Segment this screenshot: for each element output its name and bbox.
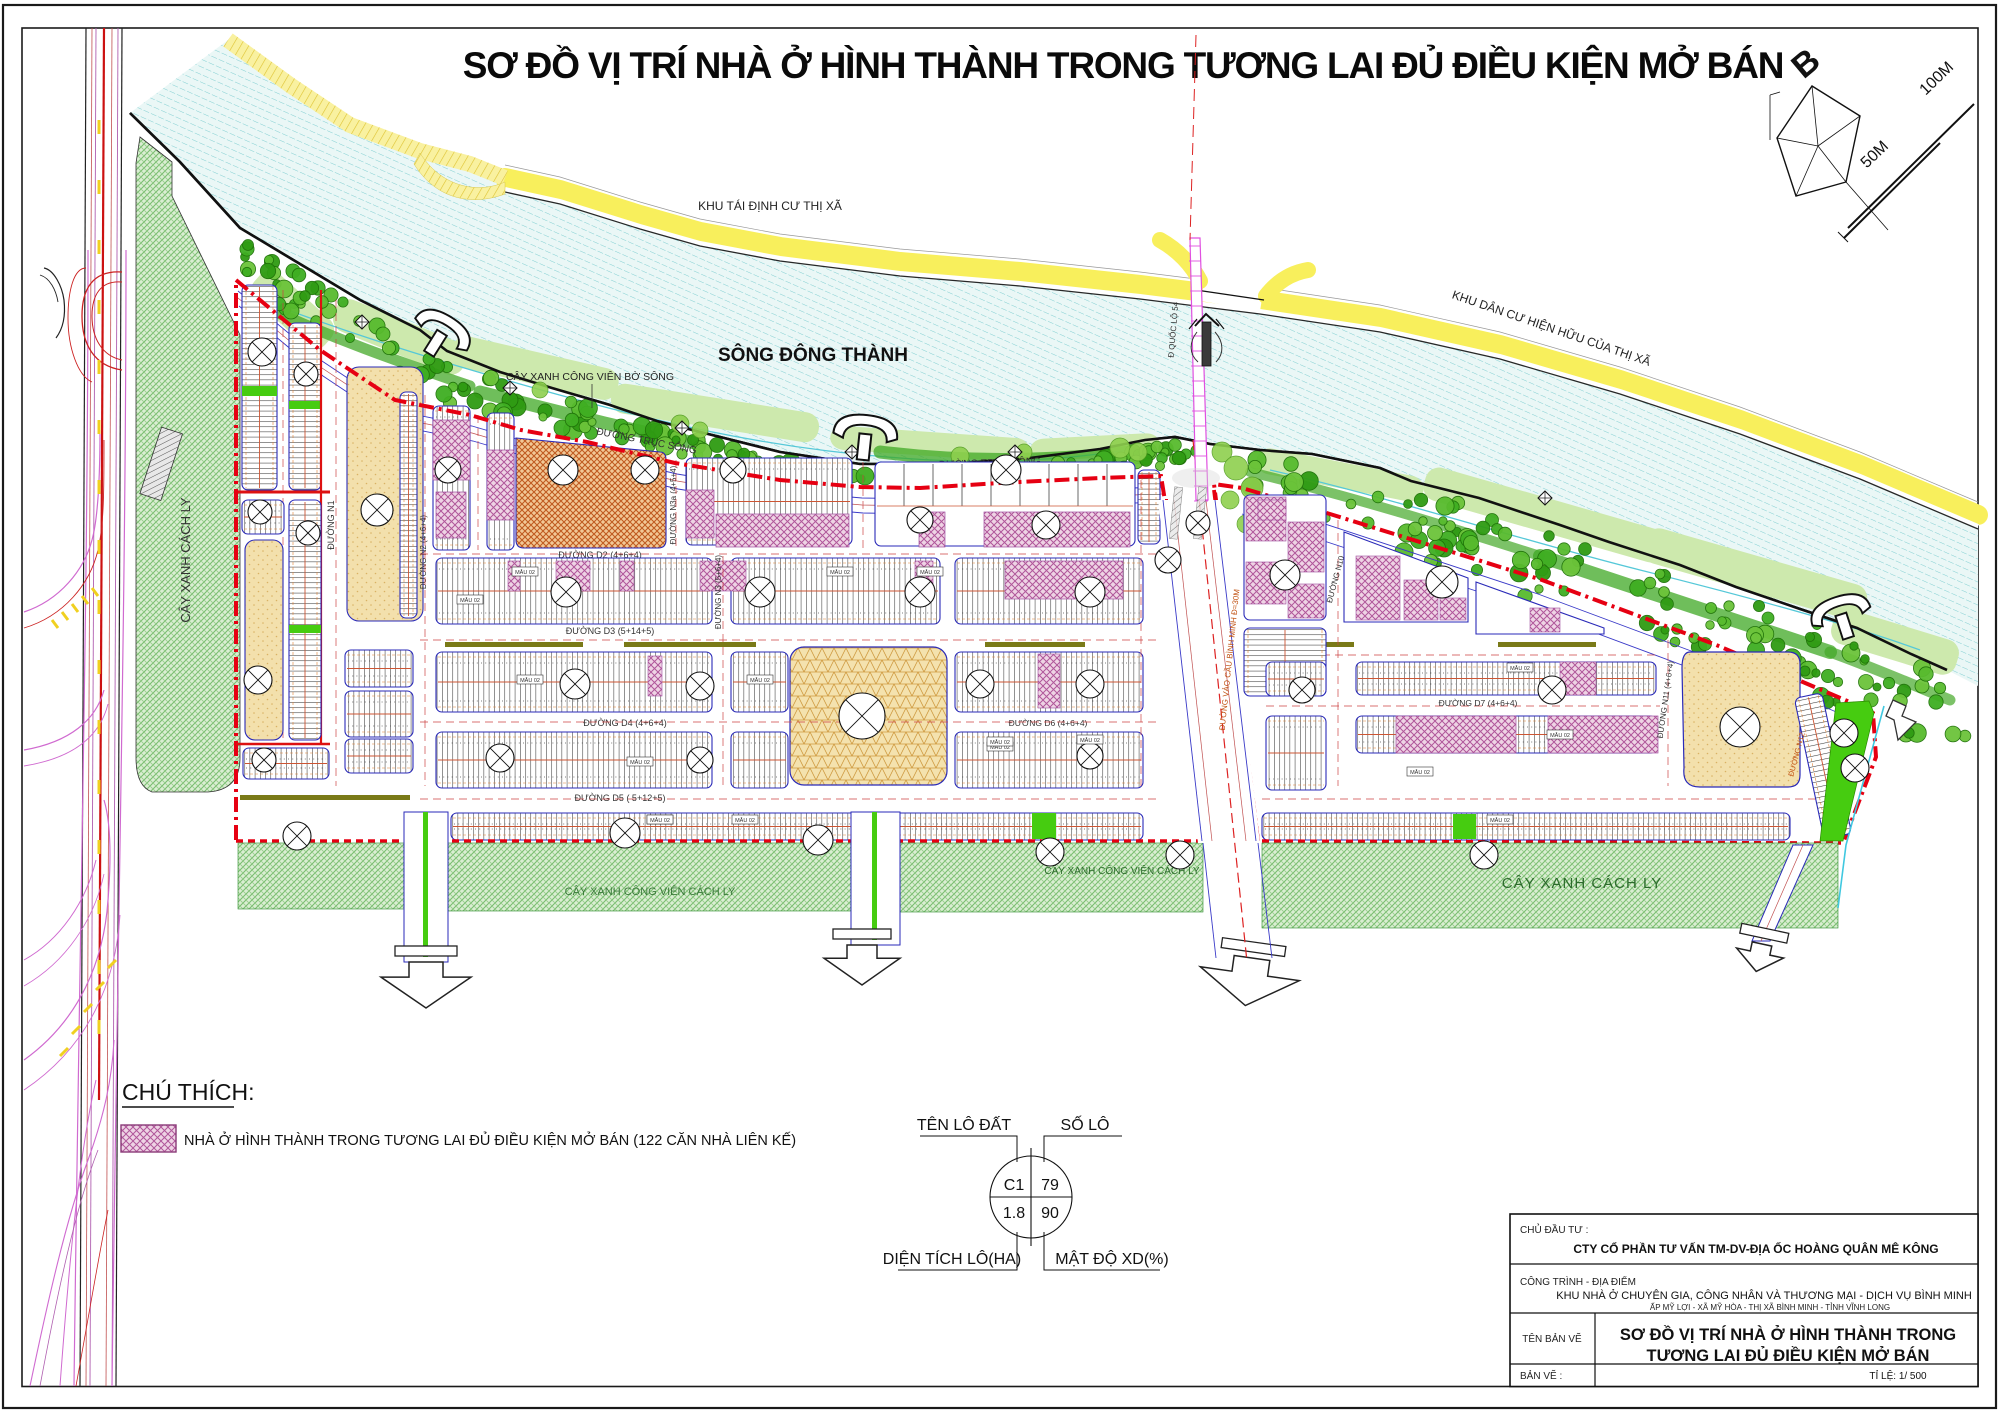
svg-text:MẪU 02: MẪU 02	[520, 677, 540, 684]
svg-text:ĐƯỜNG N1: ĐƯỜNG N1	[326, 500, 336, 549]
svg-text:MẪU 02: MẪU 02	[735, 817, 755, 824]
svg-text:MẬT ĐỘ XD(%): MẬT ĐỘ XD(%)	[1055, 1249, 1168, 1268]
svg-text:CÂY XANH CÔNG VIÊN BỜ SÔNG: CÂY XANH CÔNG VIÊN BỜ SÔNG	[506, 370, 674, 383]
svg-text:BẢN VẼ :: BẢN VẼ :	[1520, 1369, 1562, 1382]
svg-text:TÊN LÔ ĐẤT: TÊN LÔ ĐẤT	[917, 1115, 1011, 1134]
svg-text:ĐƯỜNG D6 (4+6+4): ĐƯỜNG D6 (4+6+4)	[1009, 718, 1088, 728]
svg-text:MẪU 02: MẪU 02	[1490, 817, 1510, 824]
svg-text:C1: C1	[1004, 1177, 1025, 1194]
svg-text:CÔNG TRÌNH - ĐỊA ĐIỂM: CÔNG TRÌNH - ĐỊA ĐIỂM	[1520, 1275, 1636, 1288]
svg-text:TỈ LỆ: 1/ 500: TỈ LỆ: 1/ 500	[1869, 1369, 1927, 1382]
svg-text:MẪU 02: MẪU 02	[650, 817, 670, 824]
svg-text:MẪU 02: MẪU 02	[830, 569, 850, 576]
svg-text:ĐƯỜNG D7 (4+6+4): ĐƯỜNG D7 (4+6+4)	[1439, 698, 1518, 708]
svg-text:SỐ LÔ: SỐ LÔ	[1061, 1114, 1110, 1134]
svg-text:MẪU 02: MẪU 02	[920, 569, 940, 576]
svg-text:SƠ ĐỒ VỊ TRÍ NHÀ Ở HÌNH THÀNH: SƠ ĐỒ VỊ TRÍ NHÀ Ở HÌNH THÀNH TRONG	[1620, 1325, 1956, 1344]
svg-text:MẪU 02: MẪU 02	[1550, 732, 1570, 739]
svg-text:MẪU 02: MẪU 02	[630, 759, 650, 766]
svg-text:CHỦ ĐẦU TƯ :: CHỦ ĐẦU TƯ :	[1520, 1223, 1588, 1236]
svg-text:ẤP MỸ LỢI - XÃ MỸ HÒA - THỊ XÃ: ẤP MỸ LỢI - XÃ MỸ HÒA - THỊ XÃ BÌNH MINH…	[1650, 1302, 1890, 1312]
svg-text:ĐƯỜNG N3 (5+6+4): ĐƯỜNG N3 (5+6+4)	[714, 555, 723, 629]
svg-text:90: 90	[1041, 1205, 1059, 1222]
svg-text:SÔNG ĐÔNG THÀNH: SÔNG ĐÔNG THÀNH	[718, 344, 908, 366]
svg-text:CTY CỔ PHẦN TƯ VẤN TM-DV-ĐỊA Ố: CTY CỔ PHẦN TƯ VẤN TM-DV-ĐỊA ỐC HOÀNG QU…	[1573, 1241, 1938, 1256]
svg-text:NHÀ Ở HÌNH THÀNH TRONG TƯƠNG L: NHÀ Ở HÌNH THÀNH TRONG TƯƠNG LAI ĐỦ ĐIỀU…	[184, 1131, 796, 1149]
svg-text:ĐƯỜNG N3a (4+5+4): ĐƯỜNG N3a (4+5+4)	[669, 465, 678, 544]
svg-text:CÂY XANH CÁCH LY: CÂY XANH CÁCH LY	[1502, 875, 1663, 892]
svg-text:MẪU 02: MẪU 02	[1410, 769, 1430, 776]
svg-text:ĐƯỜNG D4 (4+6+4): ĐƯỜNG D4 (4+6+4)	[583, 718, 666, 728]
svg-text:MẪU 02: MẪU 02	[1080, 737, 1100, 744]
svg-text:TƯƠNG LAI ĐỦ ĐIỀU KIỆN MỞ BÁN: TƯƠNG LAI ĐỦ ĐIỀU KIỆN MỞ BÁN	[1647, 1346, 1930, 1365]
svg-text:ĐƯỜNG D3 (5+14+5): ĐƯỜNG D3 (5+14+5)	[566, 626, 654, 636]
svg-text:MẪU 02: MẪU 02	[990, 739, 1010, 746]
svg-text:MẪU 02: MẪU 02	[460, 597, 480, 604]
svg-text:CHÚ THÍCH:: CHÚ THÍCH:	[122, 1079, 254, 1105]
svg-text:MẪU 02: MẪU 02	[1510, 665, 1530, 672]
svg-text:ĐƯỜNG N2 (4+6+4): ĐƯỜNG N2 (4+6+4)	[419, 515, 428, 589]
svg-text:79: 79	[1041, 1177, 1059, 1194]
svg-text:DIỆN TÍCH LÔ(HA): DIỆN TÍCH LÔ(HA)	[883, 1249, 1021, 1268]
svg-text:CÂY XANH CÁCH LY: CÂY XANH CÁCH LY	[178, 497, 193, 623]
svg-text:KHU NHÀ Ở CHUYÊN GIA, CÔNG NHÂ: KHU NHÀ Ở CHUYÊN GIA, CÔNG NHÂN VÀ THƯƠN…	[1556, 1289, 1972, 1302]
svg-text:KHU TÁI ĐỊNH CƯ THỊ XÃ: KHU TÁI ĐỊNH CƯ THỊ XÃ	[698, 198, 842, 213]
svg-text:ĐƯỜNG D5 ( 5+12+5): ĐƯỜNG D5 ( 5+12+5)	[575, 793, 666, 803]
svg-text:1.8: 1.8	[1003, 1205, 1025, 1222]
svg-text:SƠ ĐỒ VỊ TRÍ NHÀ Ở HÌNH THÀNH: SƠ ĐỒ VỊ TRÍ NHÀ Ở HÌNH THÀNH TRONG TƯƠN…	[463, 44, 1784, 86]
svg-text:MẪU 02: MẪU 02	[750, 677, 770, 684]
svg-text:MẪU 02: MẪU 02	[515, 569, 535, 576]
svg-text:TÊN BẢN VẼ: TÊN BẢN VẼ	[1522, 1332, 1582, 1345]
svg-text:CÂY XANH CÔNG VIÊN CÁCH LY: CÂY XANH CÔNG VIÊN CÁCH LY	[565, 885, 736, 898]
